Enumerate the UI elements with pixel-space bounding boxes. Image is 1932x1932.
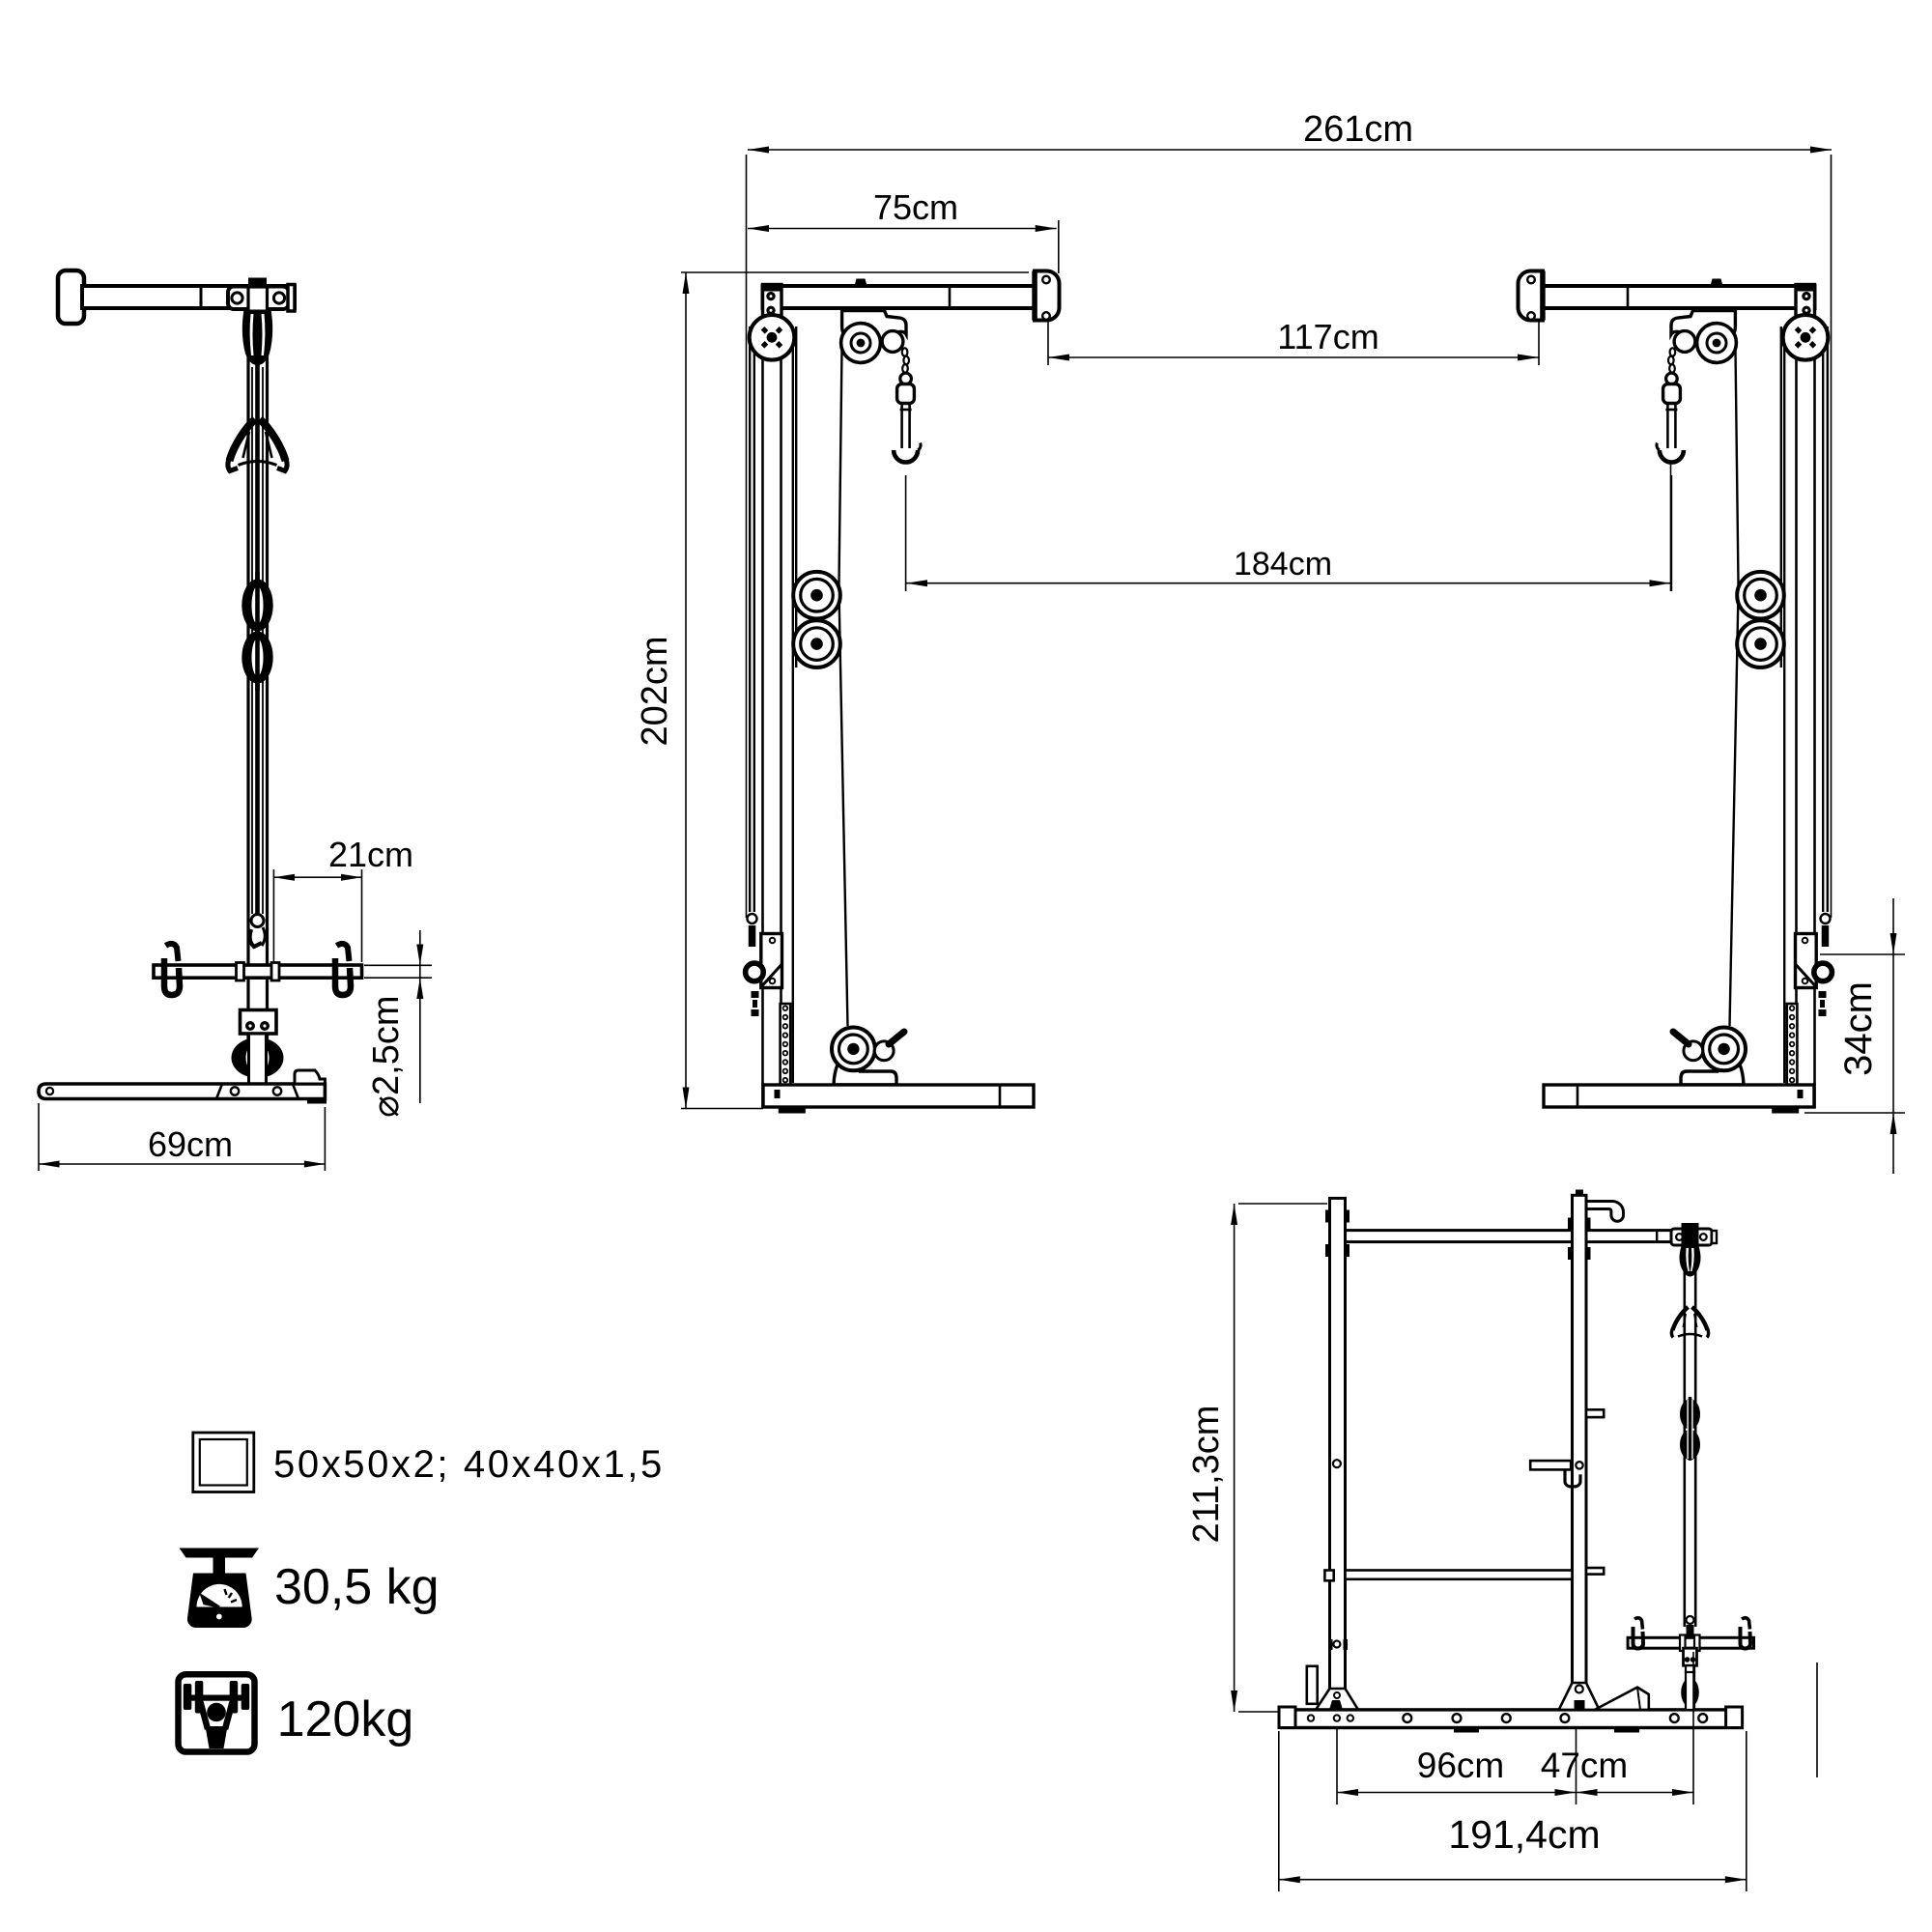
svg-text:47cm: 47cm — [1541, 1746, 1628, 1785]
svg-text:184cm: 184cm — [1234, 546, 1332, 582]
svg-text:69cm: 69cm — [148, 1124, 233, 1164]
svg-text:120kg: 120kg — [277, 1691, 414, 1747]
svg-text:96cm: 96cm — [1417, 1746, 1504, 1785]
svg-text:⌀2,5cm: ⌀2,5cm — [366, 996, 407, 1118]
svg-text:202cm: 202cm — [635, 636, 675, 746]
svg-text:50x50x2; 40x40x1,5: 50x50x2; 40x40x1,5 — [273, 1443, 665, 1486]
svg-text:117cm: 117cm — [1277, 317, 1378, 356]
svg-text:75cm: 75cm — [873, 187, 958, 227]
svg-text:261cm: 261cm — [1303, 109, 1413, 150]
svg-text:211,3cm: 211,3cm — [1186, 1406, 1227, 1544]
svg-text:30,5 kg: 30,5 kg — [274, 1559, 440, 1615]
svg-text:34cm: 34cm — [1837, 981, 1880, 1076]
svg-text:21cm: 21cm — [328, 835, 413, 874]
svg-text:191,4cm: 191,4cm — [1448, 1812, 1600, 1857]
